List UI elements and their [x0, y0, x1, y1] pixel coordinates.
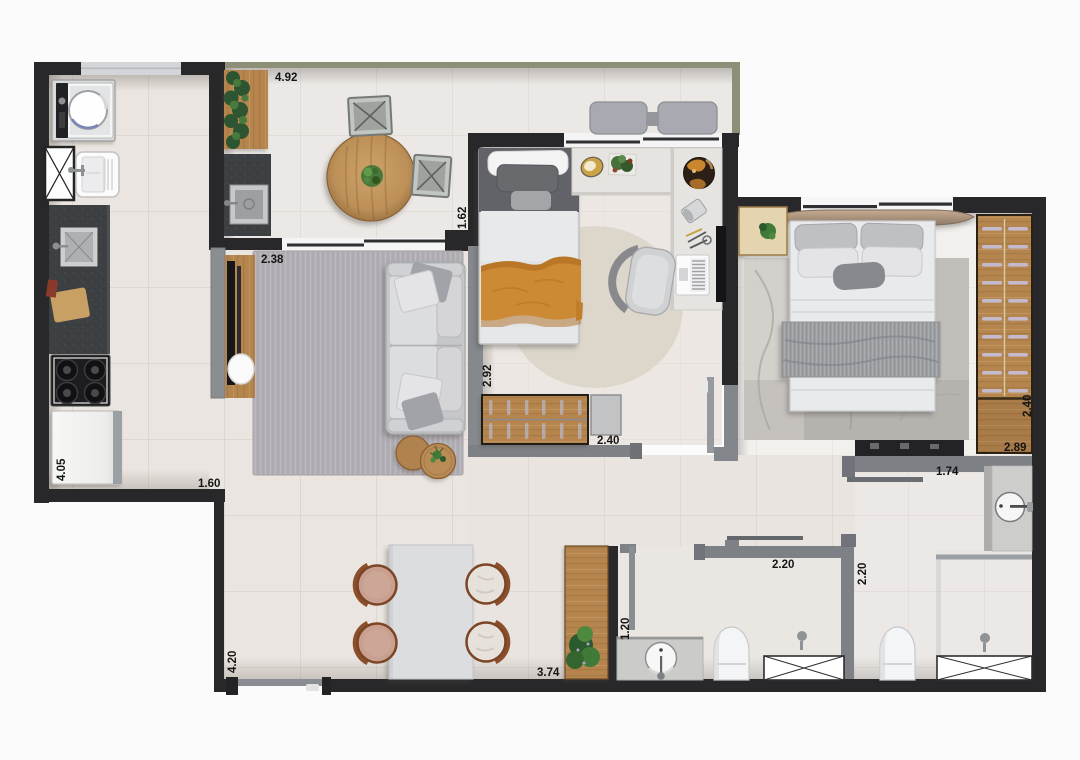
svg-text:2.20: 2.20 [772, 559, 794, 571]
svg-text:4.05: 4.05 [56, 458, 68, 481]
svg-text:2.38: 2.38 [261, 254, 284, 266]
svg-text:3.74: 3.74 [537, 667, 560, 679]
svg-text:1.62: 1.62 [457, 207, 469, 229]
svg-text:1.60: 1.60 [198, 478, 220, 490]
svg-text:1.74: 1.74 [936, 466, 959, 478]
svg-text:2.40: 2.40 [597, 435, 619, 447]
svg-text:4.92: 4.92 [275, 72, 297, 84]
svg-text:2.89: 2.89 [1004, 442, 1026, 454]
svg-text:2.20: 2.20 [857, 563, 869, 585]
svg-text:4.20: 4.20 [227, 651, 239, 673]
svg-text:1.20: 1.20 [620, 618, 632, 640]
svg-text:2.40: 2.40 [1022, 395, 1034, 417]
svg-text:2.92: 2.92 [482, 365, 494, 387]
